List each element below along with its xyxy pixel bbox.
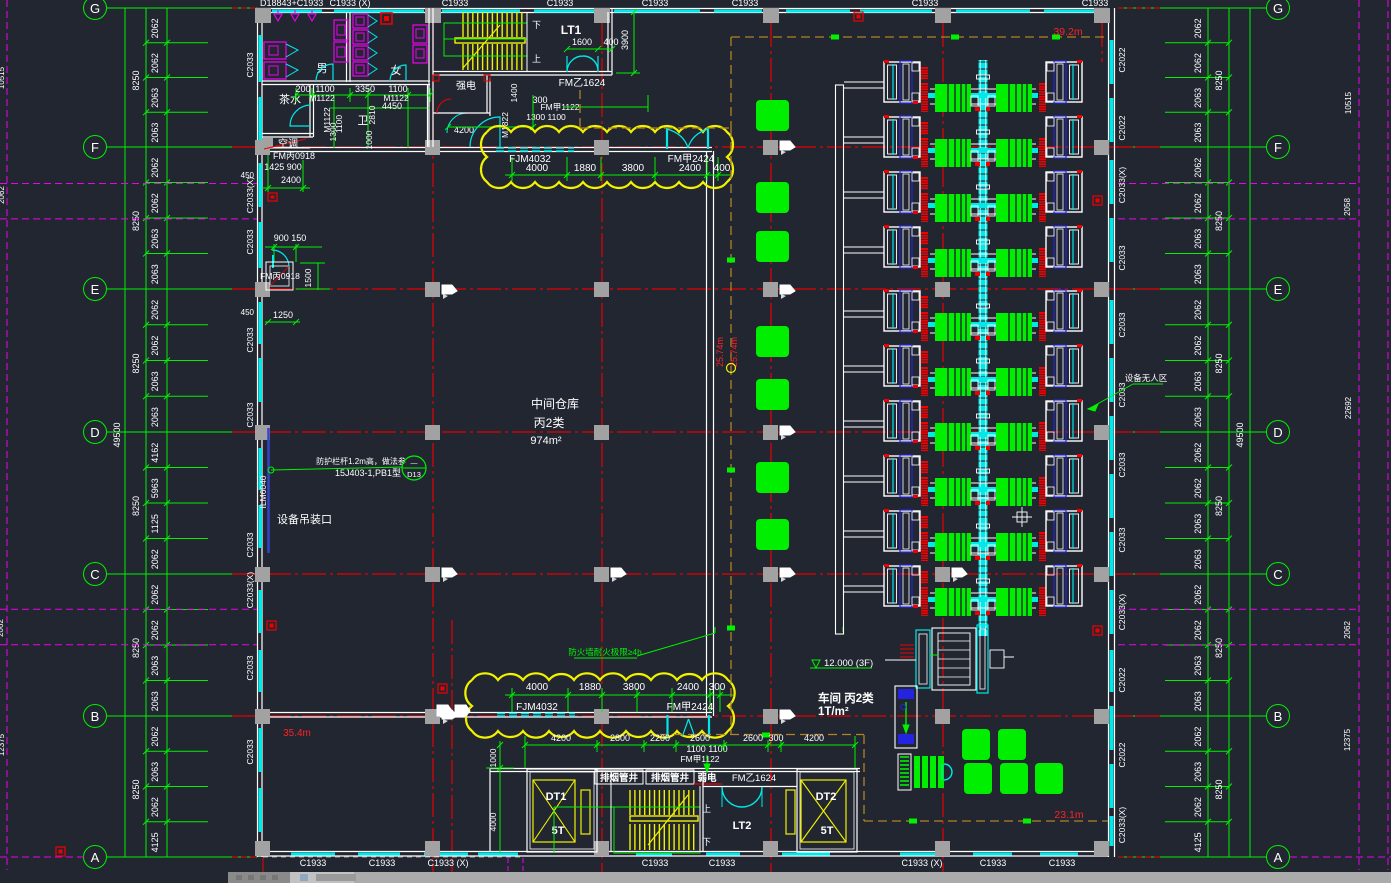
svg-text:2200: 2200: [650, 733, 670, 743]
svg-text:D: D: [1273, 425, 1282, 440]
svg-text:1400: 1400: [509, 83, 519, 102]
svg-text:C2033(X): C2033(X): [1117, 167, 1127, 204]
svg-text:12375: 12375: [1343, 728, 1352, 751]
svg-text:C2033: C2033: [245, 402, 255, 427]
svg-text:2062: 2062: [1193, 18, 1203, 38]
svg-text:3800: 3800: [623, 682, 646, 693]
svg-text:2063: 2063: [150, 656, 160, 676]
svg-text:C2022: C2022: [1117, 667, 1127, 692]
svg-text:E: E: [91, 282, 100, 297]
svg-text:4000: 4000: [526, 682, 549, 693]
svg-text:FM乙1624: FM乙1624: [732, 773, 776, 784]
svg-text:3350: 3350: [355, 84, 375, 94]
svg-text:2062: 2062: [150, 797, 160, 817]
svg-text:LT2: LT2: [733, 820, 752, 832]
svg-text:强电: 强电: [456, 79, 476, 92]
svg-text:8250: 8250: [131, 779, 141, 799]
svg-text:丙2类: 丙2类: [534, 416, 565, 430]
svg-text:C2033: C2033: [245, 52, 255, 77]
svg-text:25.74m: 25.74m: [729, 337, 739, 367]
svg-text:2062: 2062: [150, 336, 160, 356]
svg-text:3800: 3800: [622, 163, 645, 174]
svg-text:1125: 1125: [150, 514, 160, 533]
svg-text:FM丙0918: FM丙0918: [273, 151, 315, 161]
svg-text:G: G: [90, 1, 100, 16]
svg-text:300: 300: [768, 733, 783, 743]
svg-text:1300 1100: 1300 1100: [526, 112, 566, 122]
svg-text:D18843+C1933: D18843+C1933: [260, 0, 323, 8]
svg-text:C2033: C2033: [1117, 452, 1127, 477]
svg-text:35.4m: 35.4m: [283, 728, 311, 739]
svg-text:C2022: C2022: [1117, 47, 1127, 72]
svg-text:2058: 2058: [1343, 198, 1352, 216]
svg-text:2062: 2062: [1193, 336, 1203, 356]
svg-text:4125: 4125: [1193, 832, 1203, 852]
svg-text:974m²: 974m²: [530, 435, 562, 447]
svg-text:8250: 8250: [1214, 779, 1224, 799]
svg-text:2600: 2600: [690, 733, 710, 743]
svg-text:2062: 2062: [1193, 300, 1203, 320]
svg-text:4162: 4162: [150, 443, 160, 463]
svg-text:22692: 22692: [1344, 396, 1353, 419]
svg-text:23.1m: 23.1m: [1054, 809, 1083, 821]
svg-text:2062: 2062: [1343, 621, 1352, 639]
svg-text:900 150: 900 150: [274, 233, 307, 243]
svg-text:4200: 4200: [551, 733, 571, 743]
svg-text:C1933: C1933: [642, 858, 669, 868]
svg-text:1880: 1880: [574, 163, 597, 174]
svg-text:2063: 2063: [150, 407, 160, 427]
svg-text:2810: 2810: [367, 105, 377, 124]
svg-text:2062: 2062: [1193, 620, 1203, 640]
svg-text:2600: 2600: [743, 733, 763, 743]
svg-text:2063: 2063: [1193, 264, 1203, 284]
svg-text:1T/m²: 1T/m²: [818, 706, 849, 718]
svg-text:排烟管井: 排烟管井: [600, 772, 639, 784]
svg-text:1500: 1500: [303, 268, 313, 287]
svg-text:C2033(X): C2033(X): [1117, 594, 1127, 631]
svg-text:2063: 2063: [150, 691, 160, 711]
svg-text:空调: 空调: [278, 137, 298, 150]
svg-text:FM乙1624: FM乙1624: [559, 77, 606, 89]
svg-text:1100: 1100: [334, 115, 344, 134]
svg-text:C1933: C1933: [709, 858, 736, 868]
svg-text:2062: 2062: [150, 549, 160, 569]
svg-text:C2033(X): C2033(X): [245, 572, 255, 609]
svg-text:FM甲2424: FM甲2424: [667, 702, 714, 713]
svg-text:上: 上: [702, 804, 711, 814]
svg-text:FJM4032: FJM4032: [516, 702, 558, 713]
svg-text:—: —: [411, 460, 418, 467]
svg-text:C1933: C1933: [642, 0, 669, 8]
svg-text:8250: 8250: [1214, 496, 1224, 516]
svg-text:女: 女: [391, 63, 402, 77]
svg-text:8250: 8250: [1214, 211, 1224, 231]
svg-text:A: A: [91, 850, 100, 865]
svg-text:2062: 2062: [1193, 727, 1203, 747]
svg-text:2062: 2062: [150, 300, 160, 320]
svg-text:8250: 8250: [131, 70, 141, 90]
svg-text:F: F: [1274, 140, 1282, 155]
svg-text:C1933: C1933: [732, 0, 759, 8]
svg-text:车间 丙2类: 车间 丙2类: [818, 691, 874, 705]
svg-text:2062: 2062: [150, 158, 160, 178]
svg-text:2062: 2062: [1193, 585, 1203, 605]
svg-text:C2033: C2033: [245, 229, 255, 254]
svg-text:C1933: C1933: [1049, 858, 1076, 868]
svg-text:200: 200: [295, 84, 310, 94]
svg-text:DT2: DT2: [816, 791, 837, 803]
svg-text:C2022: C2022: [1117, 742, 1127, 767]
svg-text:1425 900: 1425 900: [264, 162, 302, 172]
svg-text:C2033(X): C2033(X): [245, 177, 255, 214]
svg-text:2063: 2063: [150, 264, 160, 284]
svg-text:39.2m: 39.2m: [1053, 26, 1082, 38]
svg-text:1000: 1000: [364, 130, 374, 149]
svg-text:8250: 8250: [1214, 353, 1224, 373]
svg-text:F: F: [91, 140, 99, 155]
svg-text:FM丙0918: FM丙0918: [260, 271, 300, 281]
svg-text:25.74m: 25.74m: [715, 337, 725, 367]
svg-text:2063: 2063: [1193, 229, 1203, 249]
svg-text:2062: 2062: [1193, 193, 1203, 213]
svg-text:中间仓库: 中间仓库: [531, 396, 579, 411]
svg-text:防火墙耐火极限≥4h: 防火墙耐火极限≥4h: [568, 647, 642, 657]
svg-text:2063: 2063: [150, 123, 160, 143]
svg-text:3900: 3900: [620, 30, 630, 50]
svg-text:2063: 2063: [1193, 762, 1203, 782]
svg-text:4450: 4450: [382, 101, 402, 111]
svg-text:下: 下: [702, 837, 711, 847]
svg-text:2063: 2063: [1193, 123, 1203, 143]
svg-text:LT1: LT1: [561, 23, 582, 37]
svg-text:C1933 (X): C1933 (X): [901, 858, 942, 868]
svg-text:C1933: C1933: [369, 858, 396, 868]
svg-text:10515: 10515: [1344, 91, 1353, 114]
svg-text:12.000 (3F): 12.000 (3F): [824, 658, 873, 669]
svg-text:设备无人区: 设备无人区: [1125, 373, 1168, 383]
svg-text:C2033(X): C2033(X): [1117, 807, 1127, 844]
svg-text:G: G: [1273, 1, 1283, 16]
svg-text:M1822: M1822: [500, 112, 510, 138]
svg-text:2400: 2400: [281, 175, 301, 185]
svg-text:10515: 10515: [0, 66, 6, 89]
svg-text:A: A: [1274, 850, 1283, 865]
svg-text:8250: 8250: [1214, 70, 1224, 90]
svg-text:2062: 2062: [0, 186, 6, 204]
svg-text:2063: 2063: [1193, 549, 1203, 569]
svg-text:15J403-1,PB1型: 15J403-1,PB1型: [335, 468, 401, 478]
svg-text:D: D: [90, 425, 99, 440]
svg-text:1250: 1250: [273, 310, 293, 320]
svg-text:C1933: C1933: [980, 858, 1007, 868]
svg-text:M1122: M1122: [309, 93, 335, 103]
svg-text:C1933: C1933: [912, 0, 939, 8]
svg-text:2800: 2800: [610, 733, 630, 743]
svg-text:2063: 2063: [150, 762, 160, 782]
svg-text:防护栏杆1.2m高，做法参: 防护栏杆1.2m高，做法参: [316, 456, 406, 466]
svg-text:C2033: C2033: [1117, 527, 1127, 552]
svg-text:C1933: C1933: [547, 0, 574, 8]
svg-text:C1933: C1933: [300, 858, 327, 868]
svg-text:8250: 8250: [131, 211, 141, 231]
svg-text:2063: 2063: [150, 88, 160, 108]
svg-text:1600: 1600: [572, 37, 592, 47]
svg-text:2063: 2063: [1193, 691, 1203, 711]
svg-text:2062: 2062: [150, 193, 160, 213]
svg-text:4000: 4000: [488, 812, 498, 831]
svg-text:D13: D13: [407, 470, 421, 479]
svg-text:C2033: C2033: [245, 655, 255, 680]
svg-text:2063: 2063: [1193, 407, 1203, 427]
svg-text:8250: 8250: [131, 496, 141, 516]
svg-text:2062: 2062: [1193, 53, 1203, 73]
svg-text:ILM6040: ILM6040: [258, 475, 268, 508]
svg-text:C2033: C2033: [1117, 245, 1127, 270]
svg-text:400: 400: [714, 163, 731, 174]
svg-text:2062: 2062: [1193, 797, 1203, 817]
svg-text:400: 400: [603, 37, 618, 47]
svg-text:450: 450: [241, 171, 255, 180]
svg-text:4125: 4125: [150, 832, 160, 852]
svg-text:4200: 4200: [804, 733, 824, 743]
svg-text:2062: 2062: [1193, 158, 1203, 178]
svg-text:C: C: [90, 567, 99, 582]
svg-text:C1933 (X): C1933 (X): [427, 858, 468, 868]
svg-text:8250: 8250: [131, 353, 141, 373]
svg-text:2062: 2062: [1193, 443, 1203, 463]
svg-text:1000: 1000: [488, 748, 498, 767]
svg-text:C2033: C2033: [1117, 382, 1127, 407]
svg-text:49500: 49500: [1235, 422, 1245, 447]
svg-text:2062: 2062: [150, 18, 160, 38]
svg-text:2063: 2063: [150, 371, 160, 391]
svg-text:C2033: C2033: [1117, 312, 1127, 337]
svg-text:C2033: C2033: [245, 739, 255, 764]
svg-text:DT1: DT1: [546, 791, 567, 803]
svg-text:2062: 2062: [1193, 478, 1203, 498]
svg-text:4000: 4000: [526, 163, 549, 174]
svg-text:2063: 2063: [1193, 656, 1203, 676]
svg-text:FM甲1122: FM甲1122: [680, 754, 719, 764]
svg-text:2062: 2062: [150, 727, 160, 747]
svg-text:上: 上: [532, 54, 541, 64]
svg-text:8250: 8250: [131, 638, 141, 658]
svg-text:C1933 (X): C1933 (X): [329, 0, 370, 8]
svg-text:5963: 5963: [150, 478, 160, 498]
svg-text:C2022: C2022: [1117, 115, 1127, 140]
svg-text:设备吊装口: 设备吊装口: [277, 512, 332, 526]
svg-text:下: 下: [532, 20, 541, 30]
svg-text:C: C: [1273, 567, 1282, 582]
svg-text:49500: 49500: [112, 422, 122, 447]
svg-text:排烟管井: 排烟管井: [651, 772, 690, 784]
svg-text:B: B: [91, 709, 100, 724]
svg-text:C1933: C1933: [1082, 0, 1109, 8]
svg-text:2062: 2062: [150, 53, 160, 73]
svg-text:B: B: [1274, 709, 1283, 724]
svg-text:300: 300: [709, 682, 726, 693]
svg-text:2400: 2400: [679, 163, 702, 174]
svg-text:8250: 8250: [1214, 638, 1224, 658]
svg-text:2063: 2063: [150, 229, 160, 249]
svg-text:C2033: C2033: [245, 327, 255, 352]
svg-text:12375: 12375: [0, 733, 6, 756]
svg-text:C1933: C1933: [442, 0, 469, 8]
svg-text:2062: 2062: [0, 619, 5, 637]
svg-text:5T: 5T: [821, 825, 834, 837]
svg-text:C2033: C2033: [245, 532, 255, 557]
svg-text:弱电: 弱电: [697, 772, 717, 784]
svg-text:2062: 2062: [150, 585, 160, 605]
svg-text:2062: 2062: [150, 620, 160, 640]
svg-text:2063: 2063: [1193, 514, 1203, 534]
svg-text:2063: 2063: [1193, 88, 1203, 108]
svg-text:1880: 1880: [579, 682, 602, 693]
svg-text:E: E: [1274, 282, 1283, 297]
svg-text:2400: 2400: [677, 682, 700, 693]
svg-text:2063: 2063: [1193, 371, 1203, 391]
svg-text:450: 450: [241, 308, 255, 317]
